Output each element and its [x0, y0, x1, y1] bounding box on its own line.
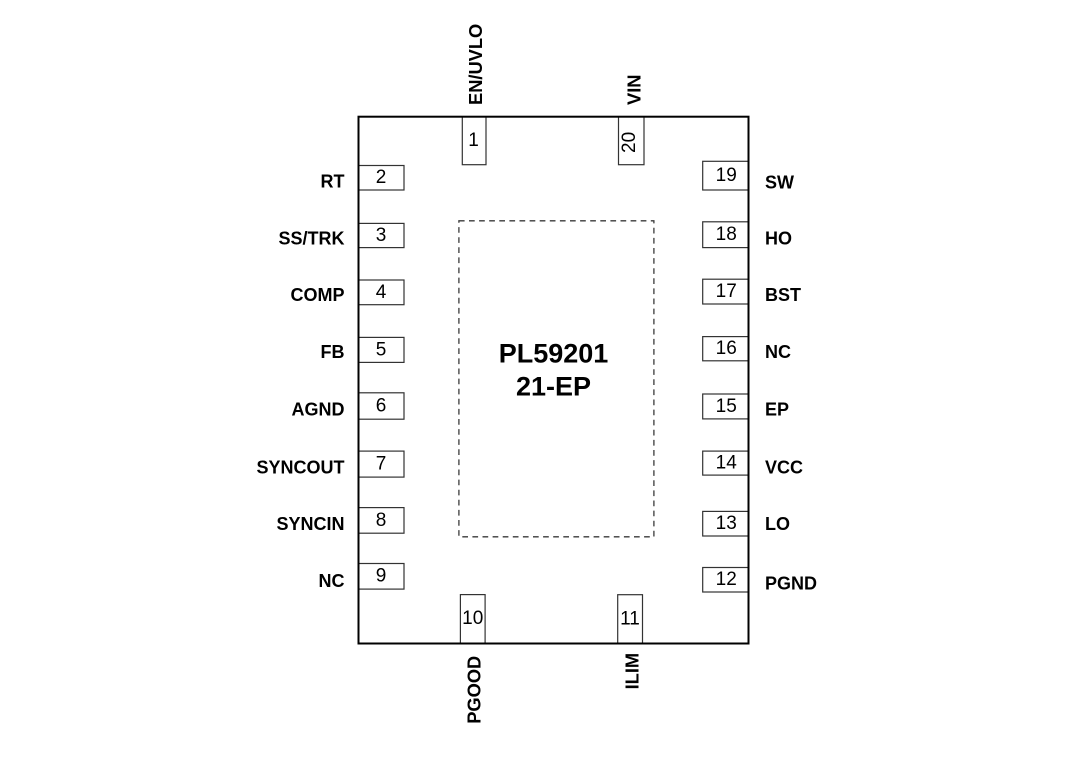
svg-text:20: 20 — [619, 132, 640, 153]
svg-text:EN/UVLO: EN/UVLO — [465, 24, 486, 105]
svg-text:SS/TRK: SS/TRK — [278, 229, 344, 249]
svg-text:NC: NC — [319, 571, 345, 591]
svg-text:PGOOD: PGOOD — [464, 656, 485, 724]
svg-text:EP: EP — [765, 400, 789, 420]
svg-text:SYNCIN: SYNCIN — [276, 514, 344, 534]
svg-text:19: 19 — [716, 165, 737, 186]
svg-text:5: 5 — [376, 339, 387, 360]
svg-text:FB: FB — [321, 342, 345, 362]
svg-text:7: 7 — [376, 454, 387, 475]
svg-text:ILIM: ILIM — [622, 653, 643, 690]
svg-text:HO: HO — [765, 229, 792, 249]
svg-text:BST: BST — [765, 285, 801, 305]
svg-text:VCC: VCC — [765, 458, 803, 478]
svg-text:SYNCOUT: SYNCOUT — [256, 458, 344, 478]
svg-text:13: 13 — [716, 513, 737, 534]
svg-text:PL59201: PL59201 — [499, 339, 609, 369]
svg-text:3: 3 — [376, 225, 387, 246]
svg-text:12: 12 — [716, 569, 737, 590]
svg-text:1: 1 — [468, 130, 479, 151]
svg-text:RT: RT — [321, 172, 345, 192]
svg-text:SW: SW — [765, 173, 794, 193]
svg-text:6: 6 — [376, 395, 387, 416]
svg-text:COMP: COMP — [291, 285, 345, 305]
svg-text:18: 18 — [716, 224, 737, 245]
svg-text:LO: LO — [765, 514, 790, 534]
svg-text:2: 2 — [376, 167, 387, 188]
svg-text:21-EP: 21-EP — [516, 372, 591, 402]
svg-text:10: 10 — [462, 608, 483, 629]
svg-text:8: 8 — [376, 510, 387, 531]
svg-text:16: 16 — [716, 338, 737, 359]
svg-text:14: 14 — [716, 453, 738, 474]
svg-text:NC: NC — [765, 342, 791, 362]
svg-text:4: 4 — [376, 282, 387, 303]
svg-text:VIN: VIN — [624, 75, 645, 105]
svg-text:15: 15 — [716, 396, 737, 417]
svg-text:11: 11 — [620, 608, 640, 629]
svg-text:9: 9 — [376, 566, 387, 587]
svg-text:AGND: AGND — [292, 400, 345, 420]
svg-text:17: 17 — [716, 281, 737, 302]
svg-text:PGND: PGND — [765, 574, 817, 594]
